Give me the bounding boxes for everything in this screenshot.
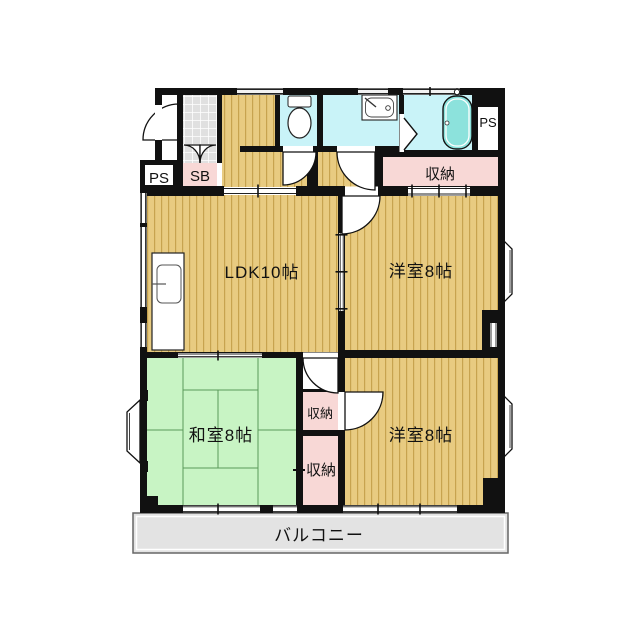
window-bottom-2 [273,506,297,512]
bay-window-left [127,400,140,463]
western-bottom-label: 洋室8帖 [389,426,453,445]
ps-left-label: PS [149,170,169,187]
window-left-2 [141,227,147,307]
wall-under-toilet-left [240,146,283,152]
ldk-label: LDK10帖 [225,263,300,282]
japanese-room-label: 和室8帖 [189,426,253,445]
wall-under-toilet-right [313,146,337,152]
shoebox-label: SB [190,168,210,185]
closet-mid-label: 収納 [307,406,333,421]
wall-closet-hall-top [375,150,505,157]
wall-corner-bottomright [483,478,505,513]
balcony-label: バルコニー [274,526,364,545]
closet-low-label: 収納 [306,462,336,479]
window-top-2 [358,89,388,95]
hall-floor-vertical [222,93,278,196]
window-left-3 [141,323,147,347]
wall-closet-col-left [296,352,303,513]
entrance-door-gap [155,105,162,140]
bath-faucet-knob [454,89,459,94]
wall-corner-bottomleft [140,496,158,513]
wall-toilet-left [275,95,280,152]
western-top-label: 洋室8帖 [389,262,453,281]
wall-stub-bay-bottom [140,461,148,472]
wall-closet-divider [303,430,338,436]
window-right-slit [490,323,497,347]
floorplan-svg: PS SB 収納 PS LDK10帖 洋室8帖 和室8帖 収納 収納 洋室8帖 … [0,0,640,640]
window-top-1 [237,89,283,95]
ps-right-label: PS [479,115,497,130]
wall-stub-bay-top [140,390,148,401]
closet-low-tick [293,469,305,471]
wall-entrance-right [217,88,222,163]
wall-toilet-right [317,95,323,152]
window-left-1 [141,193,147,223]
wall-closet-col-right-lower [338,430,345,513]
closet-hall-label: 収納 [425,166,455,183]
wall-closet-col-right-upper [338,352,345,392]
wall-western-divider [338,350,505,358]
wall-bath-ps [472,95,478,152]
toilet-bowl [288,108,311,138]
wash-basin [362,95,397,120]
floorplan-canvas: PS SB 収納 PS LDK10帖 洋室8帖 和室8帖 収納 収納 洋室8帖 … [0,0,640,640]
toilet-tank [288,96,311,107]
wall-hall-ldk-right [296,186,345,196]
